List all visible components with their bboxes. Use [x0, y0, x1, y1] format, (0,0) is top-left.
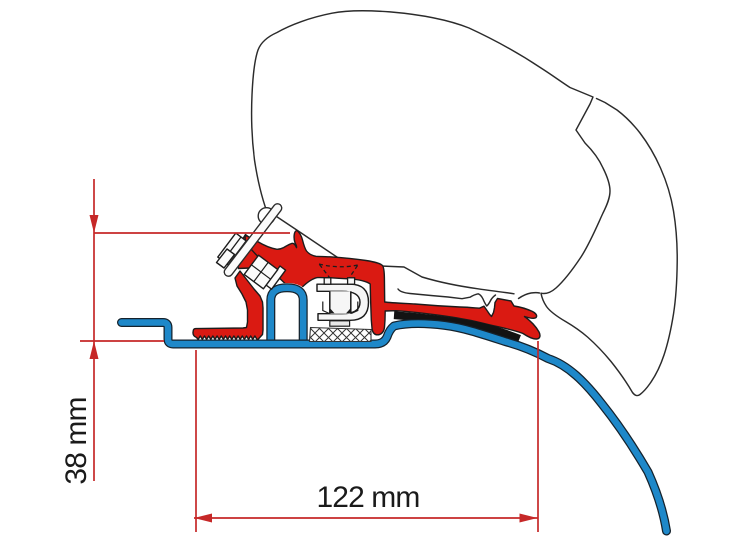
- svg-text:38 mm: 38 mm: [60, 397, 93, 484]
- svg-text:122 mm: 122 mm: [317, 481, 420, 514]
